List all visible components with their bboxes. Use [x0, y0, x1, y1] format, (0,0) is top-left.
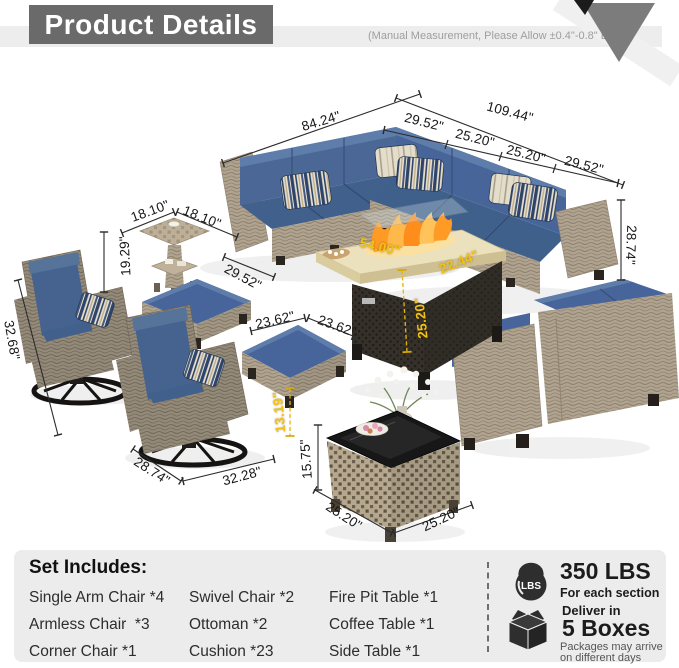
- set-includes-column: Swivel Chair *2Ottoman *2Cushion *23: [189, 584, 329, 665]
- set-includes-list: Single Arm Chair *4Armless Chair *3Corne…: [29, 584, 479, 665]
- set-includes-item: Cushion *23: [189, 638, 329, 665]
- dimension-label-8: 19.29": [116, 236, 133, 277]
- set-includes-title: Set Includes:: [29, 557, 147, 579]
- weight-value: 350 LBS: [560, 558, 651, 585]
- furniture-illustration: [0, 50, 679, 550]
- dimension-label-17: 15.75": [297, 439, 315, 480]
- swivel-chair-1: [14, 250, 134, 403]
- page-title-block: Product Details: [29, 5, 273, 44]
- boxes-note: Packages may arrive on different days: [560, 642, 663, 664]
- set-includes-item: Fire Pit Table *1: [329, 584, 479, 611]
- set-includes-panel: Set Includes: Single Arm Chair *4Armless…: [14, 550, 666, 662]
- product-details-infographic: Product Details (Manual Measurement, Ple…: [0, 0, 679, 668]
- set-includes-item: Armless Chair *3: [29, 611, 189, 638]
- corner-ribbon-fold-icon: [574, 0, 594, 15]
- set-includes-item: Side Table *1: [329, 638, 479, 665]
- page-title: Product Details: [45, 9, 258, 41]
- boxes-value: 5 Boxes: [562, 615, 650, 642]
- weight-kettlebell-icon: LBS: [508, 556, 554, 602]
- dimension-label-22: 28.74": [623, 225, 639, 265]
- set-includes-item: Swivel Chair *2: [189, 584, 329, 611]
- set-includes-item: Corner Chair *1: [29, 638, 189, 665]
- ottoman-2: [242, 325, 346, 408]
- shipping-box-icon: [504, 605, 552, 653]
- set-includes-item: Single Arm Chair *4: [29, 584, 189, 611]
- weight-note: For each section: [560, 586, 659, 600]
- set-includes-column: Fire Pit Table *1Coffee Table *1Side Tab…: [329, 584, 479, 665]
- furniture-diagram: 109.44"84.24"29.52"25.20"25.20"29.52"18.…: [0, 50, 679, 550]
- set-includes-item: Ottoman *2: [189, 611, 329, 638]
- set-includes-column: Single Arm Chair *4Armless Chair *3Corne…: [29, 584, 189, 665]
- set-includes-item: Coffee Table *1: [329, 611, 479, 638]
- panel-divider: [487, 562, 489, 652]
- lbs-badge-text: LBS: [521, 581, 541, 592]
